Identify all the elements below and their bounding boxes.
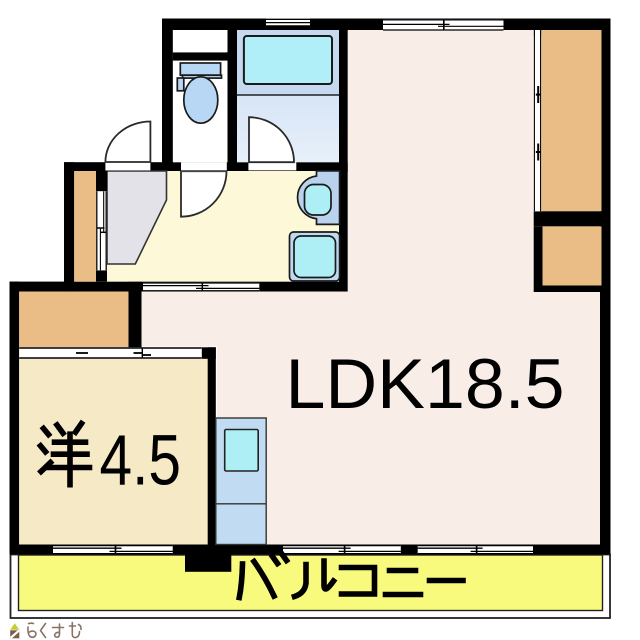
- svg-text:LDK18.5: LDK18.5: [286, 344, 565, 423]
- svg-text:4.5: 4.5: [100, 421, 182, 501]
